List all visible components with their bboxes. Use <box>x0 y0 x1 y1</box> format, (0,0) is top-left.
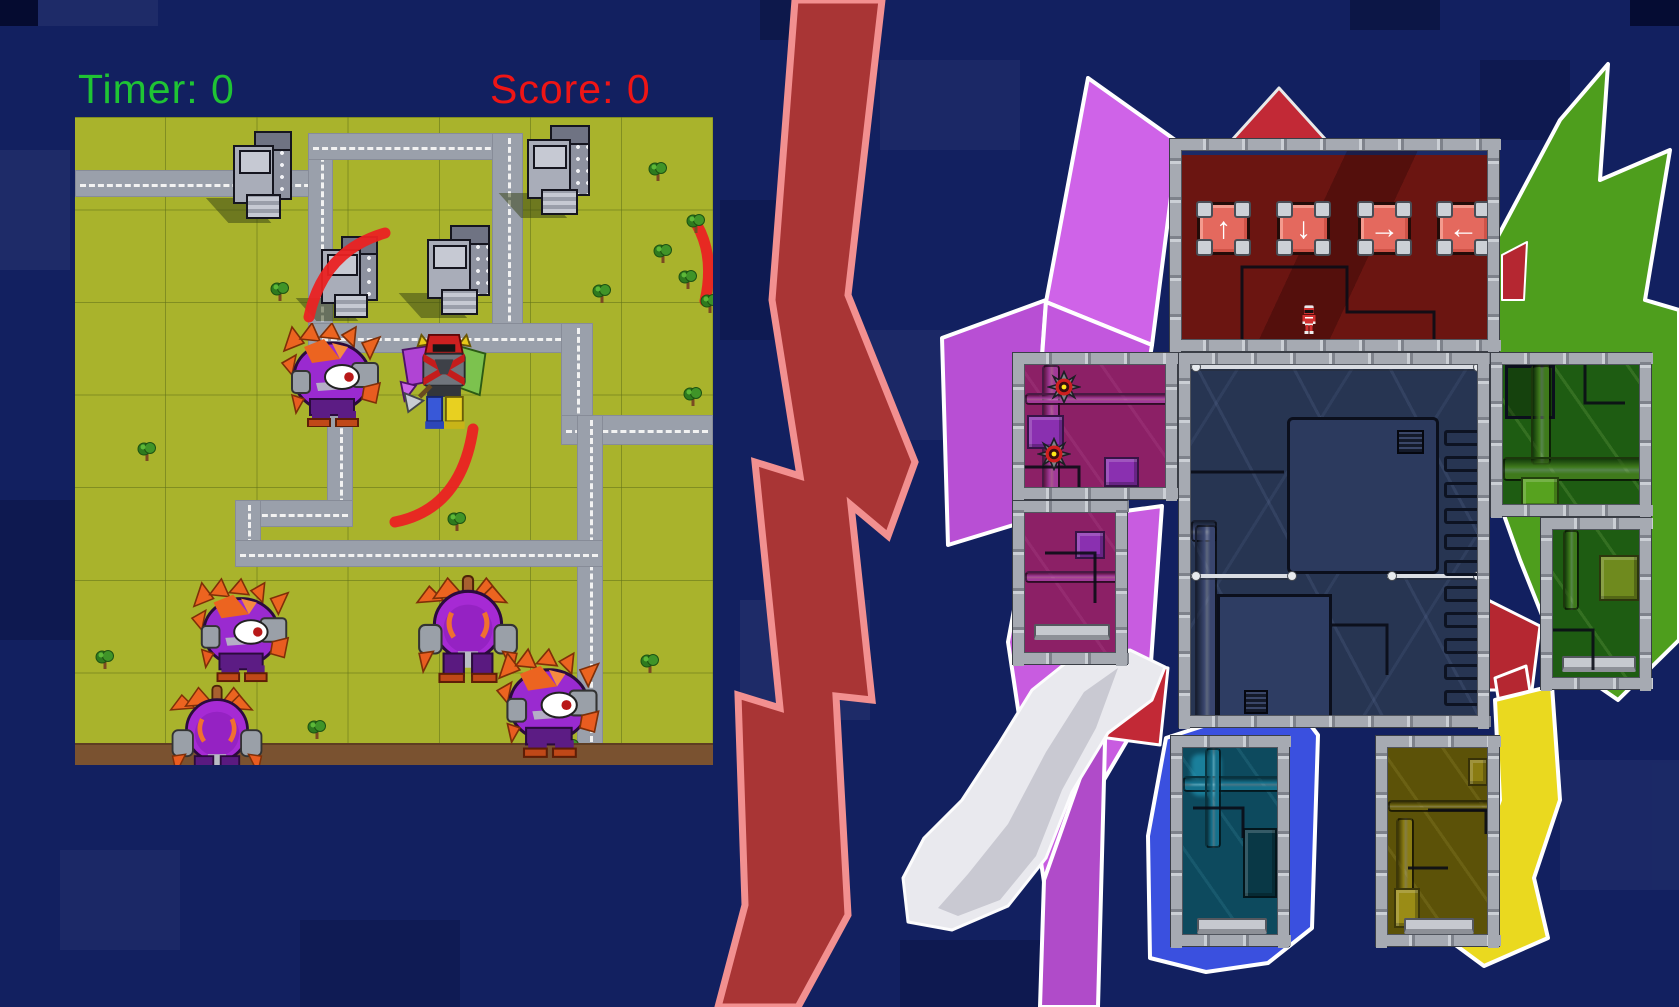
origami-glove-shade <box>938 668 1118 916</box>
detail-vent <box>1397 430 1424 454</box>
bg-mosaic-block <box>0 150 70 270</box>
bg-mosaic-block <box>0 500 75 640</box>
frame-edge <box>1376 935 1501 946</box>
dpad-up-button[interactable]: ↑ <box>1197 202 1250 255</box>
saw-enemy <box>1037 437 1071 471</box>
player-ranger <box>1299 295 1319 340</box>
bg-mosaic-block <box>1630 0 1679 26</box>
frame-edge <box>1013 501 1129 512</box>
tree <box>137 440 157 462</box>
bg-mosaic-block <box>1350 0 1440 30</box>
wall-line <box>1428 810 1486 834</box>
frame-edge <box>1488 139 1499 353</box>
frame-edge <box>1478 353 1489 729</box>
detail-plat <box>1034 624 1110 640</box>
origami-red <box>1085 655 1168 745</box>
detail-crate <box>1468 758 1488 786</box>
building-steps <box>541 189 578 215</box>
frame-edge <box>1013 353 1024 501</box>
road-segment <box>248 500 353 527</box>
origami-red <box>1502 242 1527 300</box>
beam-bolt <box>1191 364 1201 372</box>
detail-pipev <box>1531 365 1551 465</box>
detail-crate <box>1104 457 1139 487</box>
frame-edge <box>1491 505 1653 516</box>
robot-room-leg-right <box>1375 735 1500 947</box>
detail-plat <box>1197 918 1267 934</box>
room-interior-torso <box>1190 364 1478 716</box>
frame-edge <box>1491 353 1502 518</box>
frame-edge <box>1171 736 1291 747</box>
detail-crate <box>1243 828 1277 898</box>
origami-red <box>1488 600 1540 690</box>
robot-room-leg-left <box>1170 735 1290 947</box>
room-interior-head: ↑↓→← <box>1181 150 1488 340</box>
frame-edge <box>1013 653 1129 664</box>
frame-edge <box>1640 518 1651 691</box>
ladder-rung <box>1444 534 1478 550</box>
building <box>527 125 591 215</box>
bg-mosaic-block <box>38 0 158 26</box>
detail-pipeh <box>1388 800 1488 812</box>
detail-crate <box>1075 531 1105 559</box>
robot-room-arm-left-upper <box>1012 352 1178 500</box>
frame-edge <box>1171 935 1291 946</box>
ladder-rung <box>1444 664 1478 680</box>
building-steps <box>334 294 368 318</box>
ladder-rung <box>1444 586 1478 602</box>
tree <box>270 280 290 302</box>
monster-back <box>167 683 267 765</box>
saw-enemy <box>1047 370 1081 404</box>
bg-mosaic-block <box>300 920 460 1007</box>
wall-line <box>1242 267 1434 340</box>
detail-beam <box>1191 574 1295 578</box>
bg-mosaic-block <box>880 60 1020 150</box>
ladder-rung <box>1444 508 1478 524</box>
timer-label: Timer: 0 <box>78 66 235 113</box>
tree <box>678 268 698 290</box>
frame-edge <box>1166 353 1177 501</box>
frame-edge <box>1013 501 1024 666</box>
ladder-rung <box>1444 430 1478 446</box>
ladder-rung <box>1444 560 1478 576</box>
lightning-bolt <box>718 0 915 1007</box>
tree <box>640 652 660 674</box>
ladder-rung <box>1444 638 1478 654</box>
detail-pipeh <box>1183 776 1278 792</box>
arrow-left-icon: ← <box>1440 205 1487 252</box>
ladder-rung <box>1444 456 1478 472</box>
monster-cyclops <box>495 643 611 763</box>
building <box>427 225 491 315</box>
room-interior-leg-left <box>1182 747 1278 935</box>
detail-vent <box>1244 690 1268 714</box>
arrow-right-icon: → <box>1361 205 1408 252</box>
detail-crate <box>1599 555 1639 601</box>
tree <box>592 282 612 304</box>
score-label: Score: 0 <box>490 66 651 113</box>
frame-edge <box>1376 736 1501 747</box>
bg-mosaic-block <box>760 0 870 40</box>
bg-mosaic-block <box>1560 760 1679 890</box>
room-interior-arm-right-lower <box>1552 529 1640 678</box>
frame-edge <box>1013 353 1179 364</box>
origami-magenta-petal <box>1046 78 1178 345</box>
arrow-down-icon: ↓ <box>1280 205 1327 252</box>
tree <box>653 242 673 264</box>
beam-bolt <box>1287 571 1297 581</box>
room-interior-leg-right <box>1387 747 1488 935</box>
detail-panel2 <box>1217 594 1332 716</box>
bg-mosaic-block <box>60 850 180 950</box>
robot-room-head: ↑↓→← <box>1169 138 1500 352</box>
origami-glove <box>903 650 1165 930</box>
room-interior-arm-right-upper <box>1502 364 1640 505</box>
monster-cyclops <box>280 323 392 427</box>
bg-mosaic-block <box>900 940 1060 1007</box>
wall-line <box>1585 365 1625 403</box>
detail-crate <box>1521 477 1559 505</box>
detail-pipev <box>1205 748 1221 848</box>
frame-edge <box>1541 678 1653 689</box>
tree <box>95 648 115 670</box>
frame-edge <box>1376 736 1387 948</box>
building <box>233 131 293 219</box>
bg-mosaic-block <box>1480 60 1570 140</box>
frame-edge <box>1640 353 1651 518</box>
claw-slash <box>395 429 473 522</box>
road-segment <box>492 133 523 353</box>
tree <box>648 160 668 182</box>
tree <box>447 510 467 532</box>
road-segment <box>75 170 333 197</box>
building-steps <box>246 194 281 219</box>
frame-edge <box>1179 353 1491 364</box>
robot-room-arm-right-upper <box>1490 352 1652 517</box>
road-segment <box>235 540 603 567</box>
frame-edge <box>1171 736 1182 948</box>
room-interior-arm-left-upper <box>1024 364 1166 488</box>
beam-bolt <box>1387 571 1397 581</box>
bg-mosaic-block <box>860 330 960 440</box>
bg-mosaic-block <box>740 600 870 720</box>
wall-line <box>1332 625 1387 675</box>
monster-cyclops <box>190 573 300 687</box>
ladder-rung <box>1444 612 1478 628</box>
frame-edge <box>1170 340 1501 351</box>
road-center-line <box>508 138 511 348</box>
game-screen: ↑↓→← Timer: 0 Score: 0 <box>0 0 1679 1007</box>
detail-pipev <box>1563 530 1579 610</box>
dpad-left-button[interactable]: ← <box>1437 202 1488 255</box>
road-segment <box>308 133 523 160</box>
tree <box>683 385 703 407</box>
frame-edge <box>1116 501 1127 666</box>
frame-edge <box>1179 716 1491 727</box>
ladder-rung <box>1444 690 1478 706</box>
frame-edge <box>1541 518 1653 529</box>
detail-beam <box>1191 365 1478 369</box>
road-center-line <box>253 514 348 517</box>
frame-edge <box>1179 353 1190 729</box>
frame-edge <box>1488 736 1499 948</box>
dpad-right-button[interactable]: → <box>1358 202 1411 255</box>
frame-edge <box>1278 736 1289 948</box>
detail-pipev <box>1195 525 1217 716</box>
detail-pipeh <box>1025 571 1116 583</box>
dpad-down-button[interactable]: ↓ <box>1277 202 1330 255</box>
bg-mosaic-block <box>720 200 840 340</box>
detail-plat <box>1404 918 1474 934</box>
arrow-up-icon: ↑ <box>1200 205 1247 252</box>
frame-edge <box>1541 518 1552 691</box>
building-steps <box>441 289 478 315</box>
frame-edge <box>1170 139 1181 353</box>
road-center-line <box>313 147 518 150</box>
frame-edge <box>1170 139 1501 150</box>
bg-mosaic-block <box>0 0 38 26</box>
tree <box>307 718 327 740</box>
road-center-line <box>240 554 598 557</box>
city-map-panel <box>75 117 713 765</box>
room-interior-arm-left-lower <box>1024 512 1116 653</box>
claw-slash <box>697 225 709 301</box>
robot-room-torso <box>1178 352 1490 728</box>
detail-plat <box>1562 656 1636 672</box>
beam-bolt <box>1191 571 1201 581</box>
origami-red <box>1232 88 1326 140</box>
origami-red <box>1495 666 1532 710</box>
frame-edge <box>1491 353 1653 364</box>
tree <box>700 292 713 314</box>
building <box>321 236 379 318</box>
robot-room-arm-left-lower <box>1012 500 1128 665</box>
robot-room-arm-right-lower <box>1540 517 1652 690</box>
tree <box>686 212 706 234</box>
beam-bolt <box>1473 364 1478 372</box>
monster-warrior <box>397 327 491 433</box>
ladder-rung <box>1444 482 1478 498</box>
frame-edge <box>1013 488 1179 499</box>
